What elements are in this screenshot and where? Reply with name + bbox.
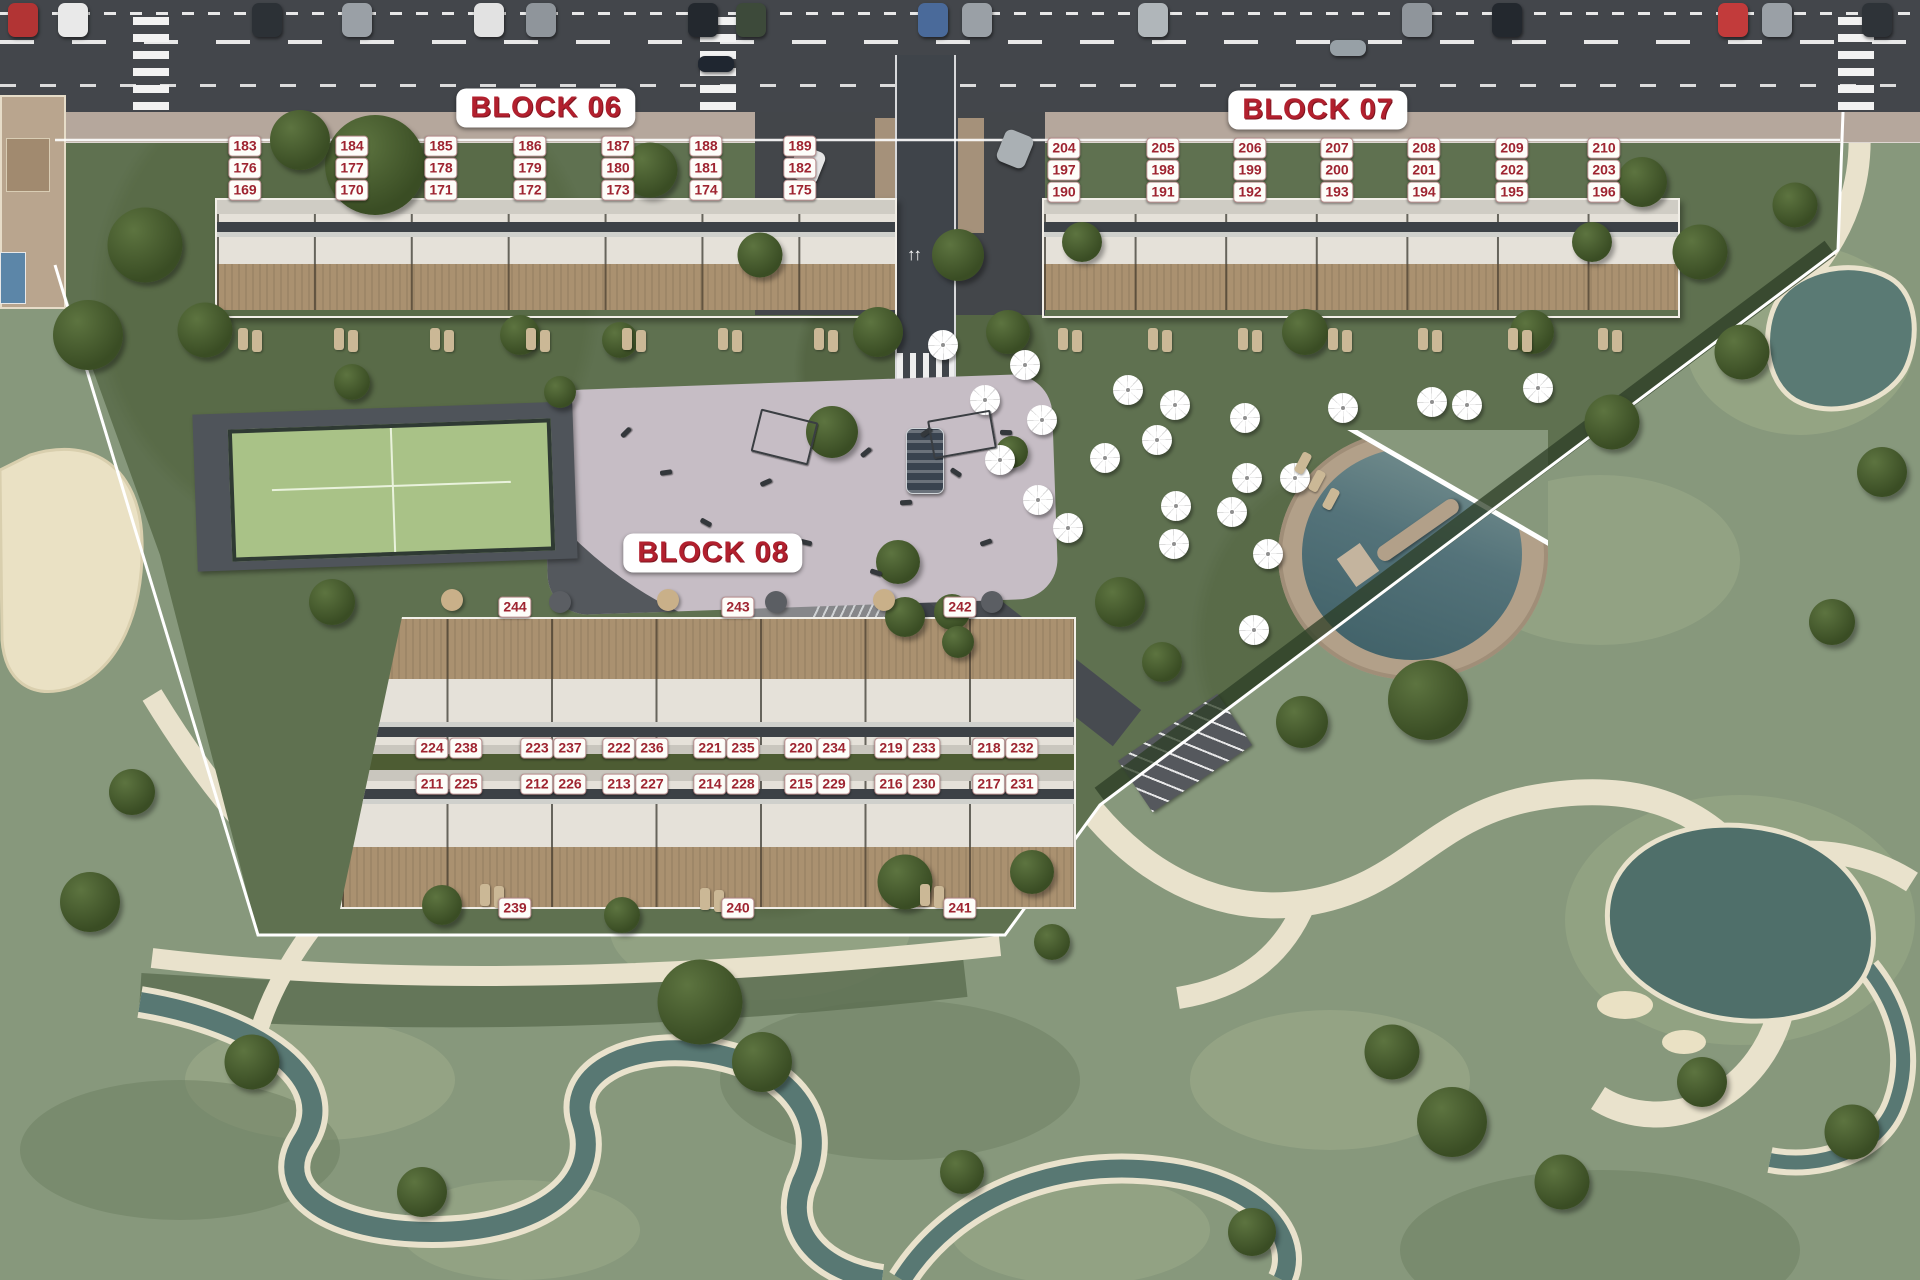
unit-label-219[interactable]: 219 bbox=[874, 738, 907, 759]
unit-label-228[interactable]: 228 bbox=[726, 774, 759, 795]
unit-label-203[interactable]: 203 bbox=[1587, 160, 1620, 181]
unit-label-189[interactable]: 189 bbox=[783, 136, 816, 157]
unit-label-243[interactable]: 243 bbox=[721, 597, 754, 618]
unit-label-240[interactable]: 240 bbox=[721, 898, 754, 919]
unit-label-169[interactable]: 169 bbox=[228, 180, 261, 201]
unit-label-198[interactable]: 198 bbox=[1146, 160, 1179, 181]
unit-label-173[interactable]: 173 bbox=[601, 180, 634, 201]
unit-label-234[interactable]: 234 bbox=[817, 738, 850, 759]
site-plan-map: ↑↑ ↑ bbox=[0, 0, 1920, 1280]
unit-label-222[interactable]: 222 bbox=[602, 738, 635, 759]
unit-label-201[interactable]: 201 bbox=[1407, 160, 1440, 181]
unit-label-225[interactable]: 225 bbox=[449, 774, 482, 795]
unit-label-244[interactable]: 244 bbox=[498, 597, 531, 618]
block-title-08: BLOCK 08 bbox=[623, 534, 802, 573]
unit-label-213[interactable]: 213 bbox=[602, 774, 635, 795]
unit-label-232[interactable]: 232 bbox=[1005, 738, 1038, 759]
unit-label-193[interactable]: 193 bbox=[1320, 182, 1353, 203]
unit-label-218[interactable]: 218 bbox=[972, 738, 1005, 759]
block-title-06: BLOCK 06 bbox=[456, 89, 635, 128]
unit-label-177[interactable]: 177 bbox=[335, 158, 368, 179]
unit-label-227[interactable]: 227 bbox=[635, 774, 668, 795]
unit-label-237[interactable]: 237 bbox=[553, 738, 586, 759]
unit-label-206[interactable]: 206 bbox=[1233, 138, 1266, 159]
unit-label-205[interactable]: 205 bbox=[1146, 138, 1179, 159]
unit-label-229[interactable]: 229 bbox=[817, 774, 850, 795]
unit-label-187[interactable]: 187 bbox=[601, 136, 634, 157]
unit-label-211[interactable]: 211 bbox=[416, 774, 449, 795]
unit-label-170[interactable]: 170 bbox=[335, 180, 368, 201]
unit-label-230[interactable]: 230 bbox=[907, 774, 940, 795]
unit-label-226[interactable]: 226 bbox=[553, 774, 586, 795]
unit-label-220[interactable]: 220 bbox=[784, 738, 817, 759]
unit-label-182[interactable]: 182 bbox=[783, 158, 816, 179]
block-title-07: BLOCK 07 bbox=[1228, 91, 1407, 130]
unit-label-238[interactable]: 238 bbox=[449, 738, 482, 759]
unit-label-194[interactable]: 194 bbox=[1407, 182, 1440, 203]
unit-label-217[interactable]: 217 bbox=[972, 774, 1005, 795]
unit-label-172[interactable]: 172 bbox=[513, 180, 546, 201]
unit-label-186[interactable]: 186 bbox=[513, 136, 546, 157]
unit-label-215[interactable]: 215 bbox=[784, 774, 817, 795]
unit-label-184[interactable]: 184 bbox=[335, 136, 368, 157]
unit-label-233[interactable]: 233 bbox=[907, 738, 940, 759]
unit-label-178[interactable]: 178 bbox=[424, 158, 457, 179]
unit-label-199[interactable]: 199 bbox=[1233, 160, 1266, 181]
unit-label-180[interactable]: 180 bbox=[601, 158, 634, 179]
unit-label-209[interactable]: 209 bbox=[1495, 138, 1528, 159]
unit-label-207[interactable]: 207 bbox=[1320, 138, 1353, 159]
unit-label-190[interactable]: 190 bbox=[1047, 182, 1080, 203]
unit-label-236[interactable]: 236 bbox=[635, 738, 668, 759]
unit-label-171[interactable]: 171 bbox=[424, 180, 457, 201]
unit-label-200[interactable]: 200 bbox=[1320, 160, 1353, 181]
unit-label-176[interactable]: 176 bbox=[228, 158, 261, 179]
unit-label-216[interactable]: 216 bbox=[874, 774, 907, 795]
unit-label-179[interactable]: 179 bbox=[513, 158, 546, 179]
unit-label-195[interactable]: 195 bbox=[1495, 182, 1528, 203]
unit-label-185[interactable]: 185 bbox=[424, 136, 457, 157]
unit-label-223[interactable]: 223 bbox=[520, 738, 553, 759]
unit-label-239[interactable]: 239 bbox=[498, 898, 531, 919]
unit-label-241[interactable]: 241 bbox=[943, 898, 976, 919]
unit-label-197[interactable]: 197 bbox=[1047, 160, 1080, 181]
unit-label-191[interactable]: 191 bbox=[1146, 182, 1179, 203]
unit-label-224[interactable]: 224 bbox=[415, 738, 448, 759]
unit-label-221[interactable]: 221 bbox=[693, 738, 726, 759]
unit-label-175[interactable]: 175 bbox=[783, 180, 816, 201]
unit-label-192[interactable]: 192 bbox=[1233, 182, 1266, 203]
label-layer: BLOCK 06 BLOCK 07 BLOCK 08 1831841851861… bbox=[0, 0, 1920, 1280]
unit-label-188[interactable]: 188 bbox=[689, 136, 722, 157]
unit-label-210[interactable]: 210 bbox=[1587, 138, 1620, 159]
unit-label-235[interactable]: 235 bbox=[726, 738, 759, 759]
unit-label-183[interactable]: 183 bbox=[228, 136, 261, 157]
unit-label-231[interactable]: 231 bbox=[1005, 774, 1038, 795]
unit-label-242[interactable]: 242 bbox=[943, 597, 976, 618]
unit-label-202[interactable]: 202 bbox=[1495, 160, 1528, 181]
unit-label-181[interactable]: 181 bbox=[689, 158, 722, 179]
unit-label-204[interactable]: 204 bbox=[1047, 138, 1080, 159]
unit-label-174[interactable]: 174 bbox=[689, 180, 722, 201]
unit-label-208[interactable]: 208 bbox=[1407, 138, 1440, 159]
unit-label-212[interactable]: 212 bbox=[520, 774, 553, 795]
unit-label-214[interactable]: 214 bbox=[693, 774, 726, 795]
unit-label-196[interactable]: 196 bbox=[1587, 182, 1620, 203]
